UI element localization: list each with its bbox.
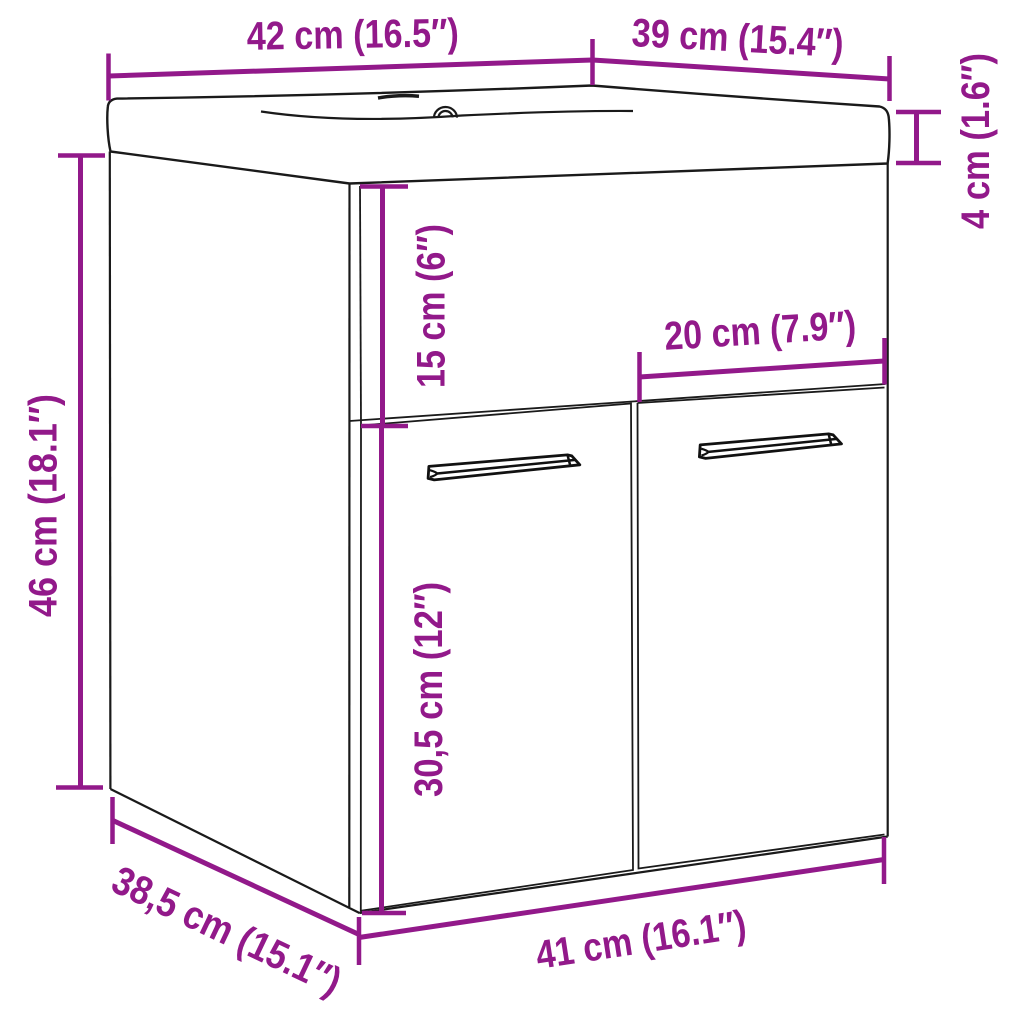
svg-text:15 cm (6″): 15 cm (6″) xyxy=(410,224,454,388)
svg-text:42 cm (16.5″): 42 cm (16.5″) xyxy=(246,11,459,59)
svg-text:46 cm (18.1″): 46 cm (18.1″) xyxy=(22,394,66,617)
svg-text:30,5 cm (12″): 30,5 cm (12″) xyxy=(407,582,451,797)
svg-text:4 cm (1.6″): 4 cm (1.6″) xyxy=(954,53,998,229)
